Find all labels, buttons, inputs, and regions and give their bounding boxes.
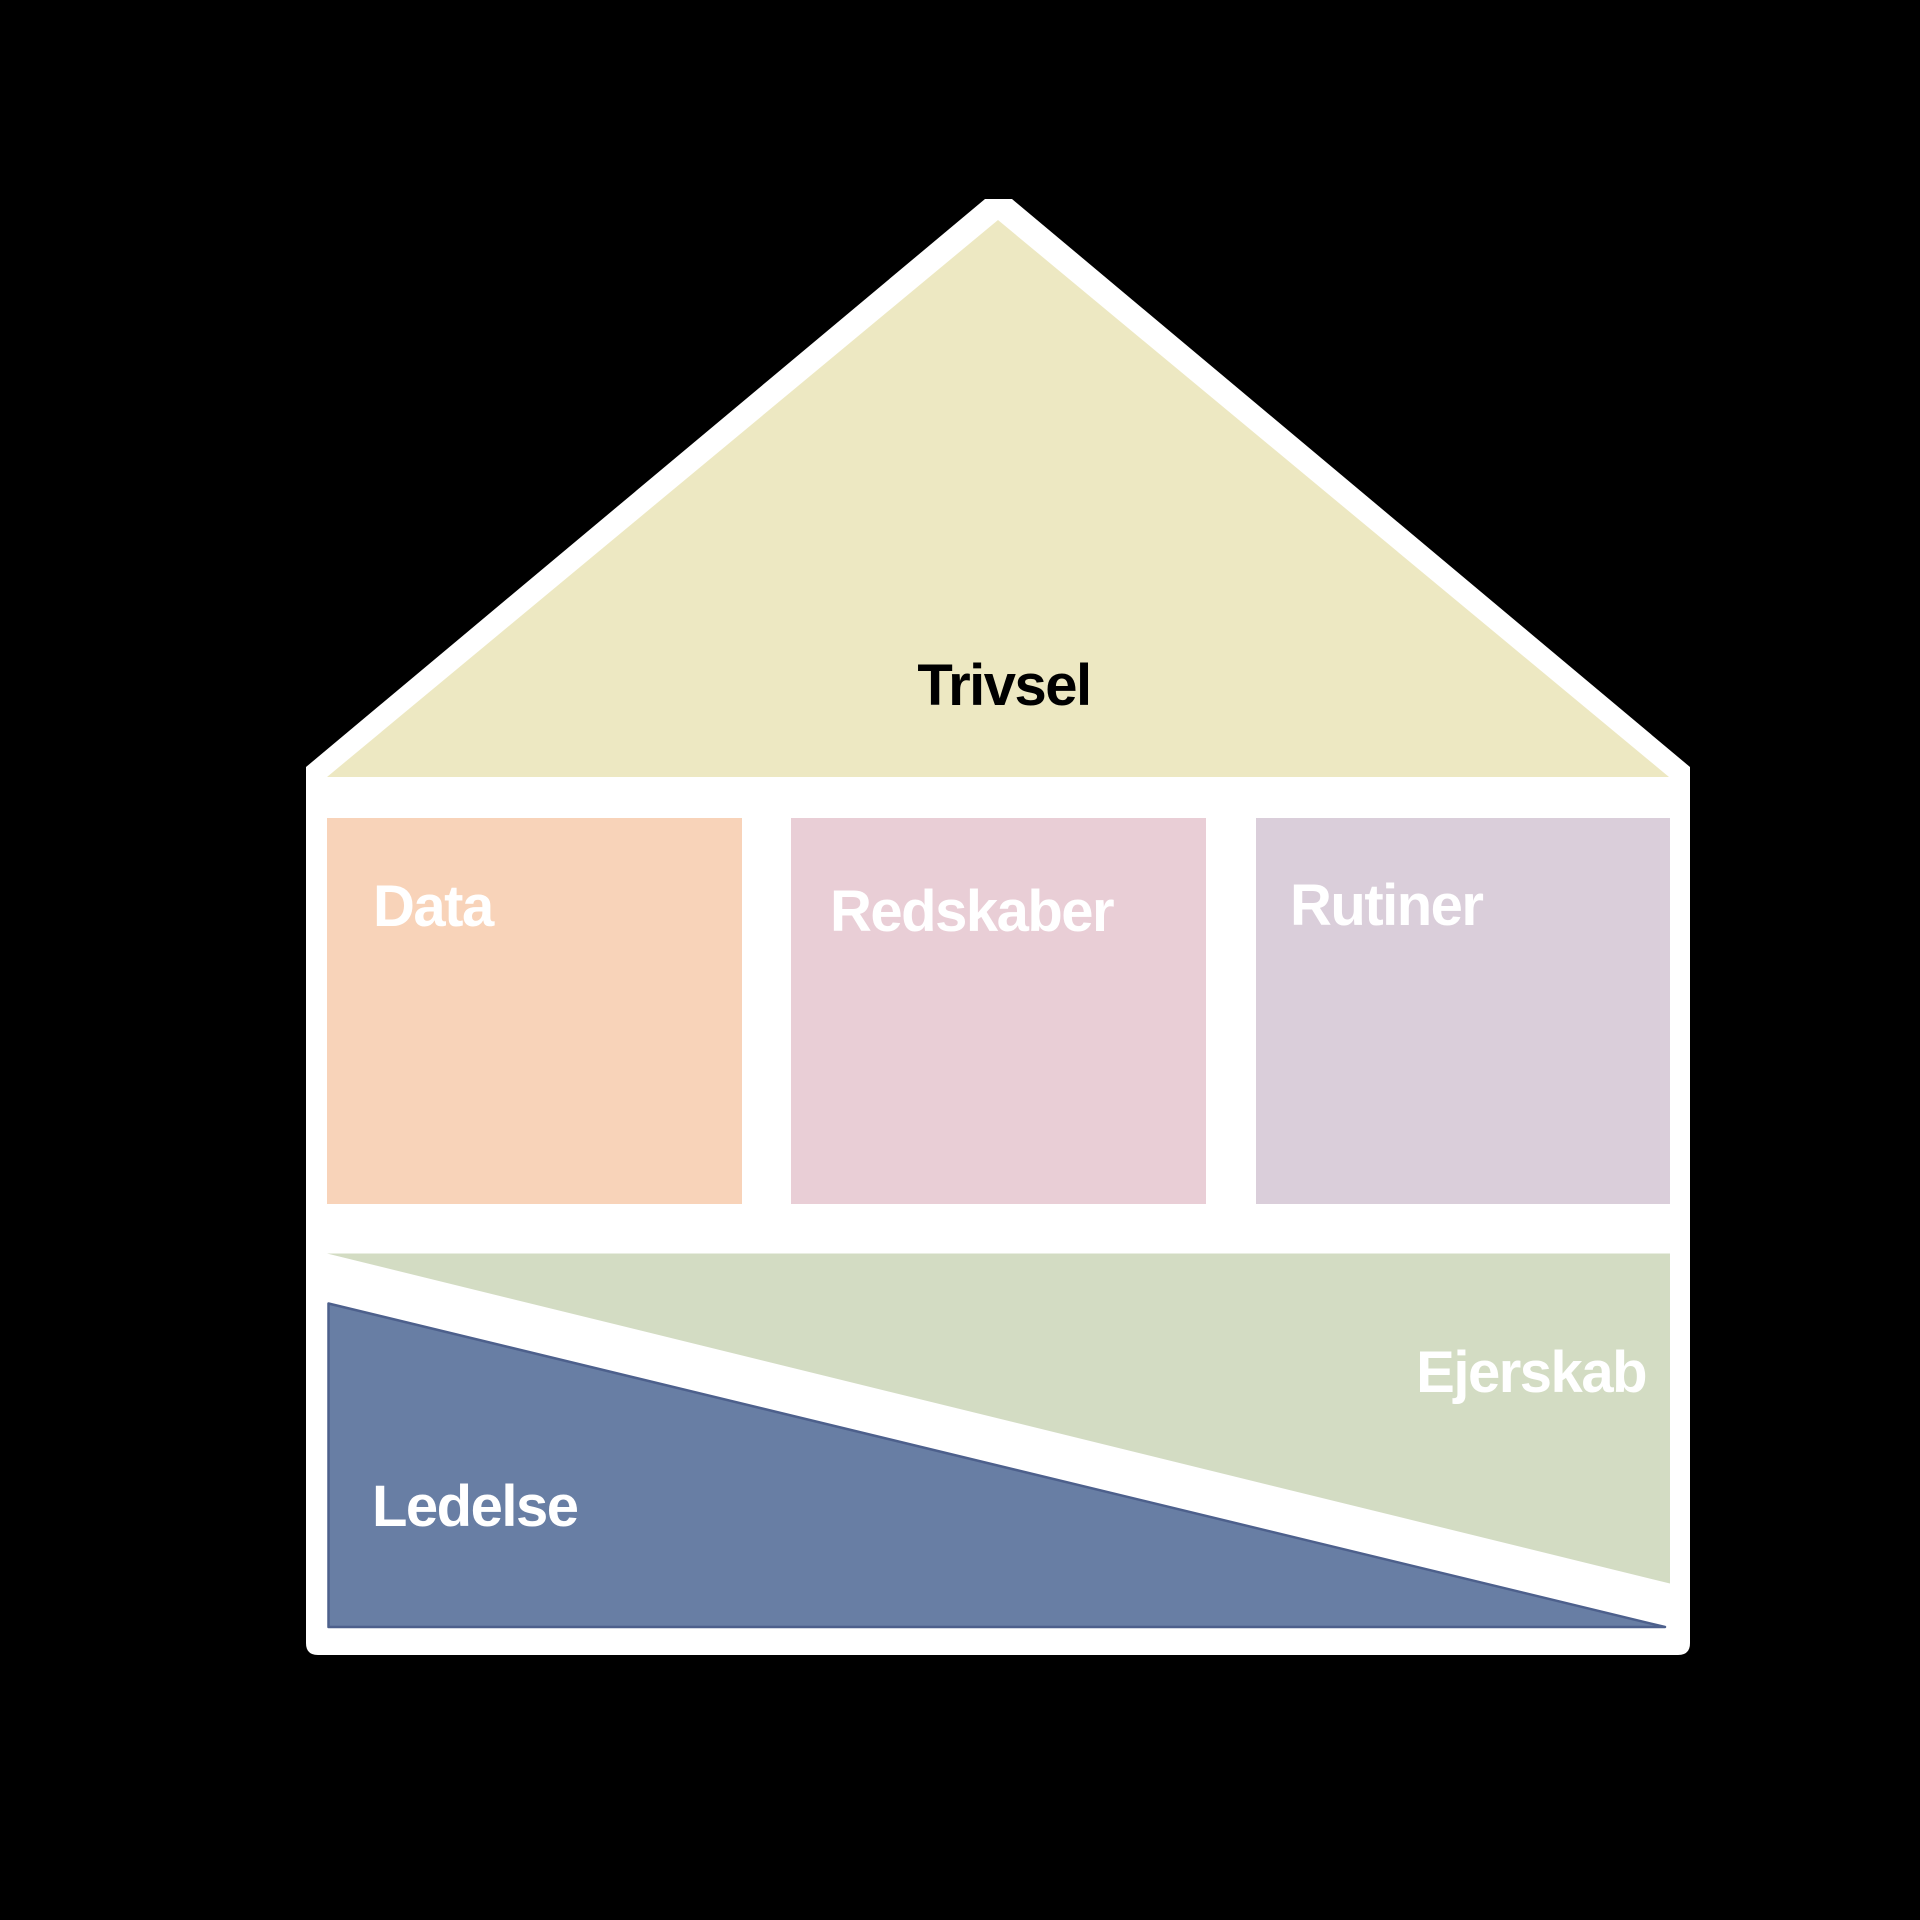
svg-text:Trivsel: Trivsel	[917, 653, 1090, 718]
svg-text:Ejerskab: Ejerskab	[1416, 1340, 1646, 1405]
svg-text:Data: Data	[373, 874, 495, 939]
svg-text:Ledelse: Ledelse	[372, 1474, 578, 1539]
svg-text:Redskaber: Redskaber	[830, 879, 1114, 944]
svg-text:Rutiner: Rutiner	[1290, 873, 1483, 938]
